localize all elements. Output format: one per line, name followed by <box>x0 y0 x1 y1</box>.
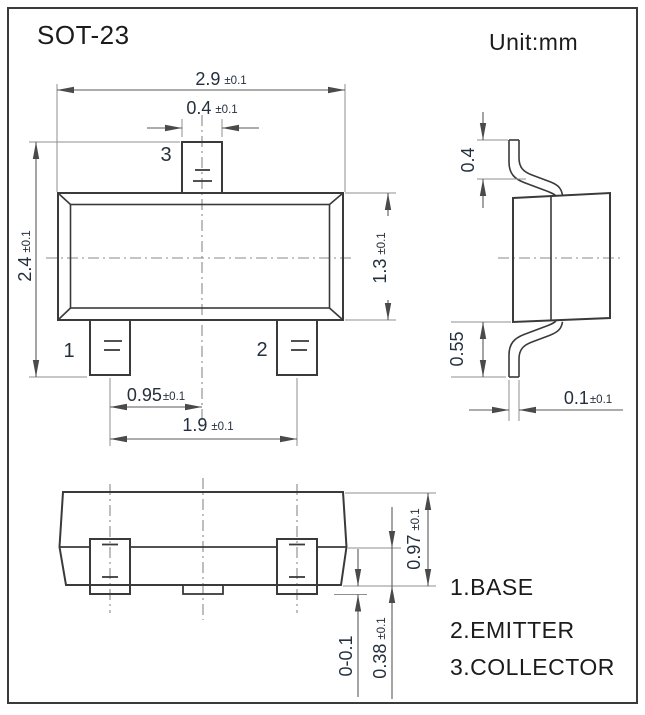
dim-upper-lead-length: 0.4 <box>458 112 526 208</box>
dim-text: 0.38±0.1 <box>370 617 390 678</box>
dim-tab-width: 0.4±0.1 <box>147 98 259 137</box>
package-outline-drawing: SOT-23 Unit:mm 3 1 2 <box>0 0 645 715</box>
dim-value: 1.3 <box>370 259 390 284</box>
dim-value: 2.9 <box>195 69 220 89</box>
seated-view: 0.97±0.1 0.38±0.1 0-0.1 <box>60 478 437 699</box>
dim-value: 0.95 <box>127 385 162 405</box>
side-lower-lead <box>519 322 563 377</box>
dim-standoff: 0-0.1 <box>334 549 367 697</box>
dim-tolerance: ±0.1 <box>163 391 185 403</box>
dim-overall-height: 2.4±0.1 <box>15 142 180 377</box>
front-lead-2 <box>277 320 317 375</box>
dim-tolerance: ±0.1 <box>410 508 422 530</box>
dim-value: 0.4 <box>186 98 211 118</box>
dim-text: 0.97±0.1 <box>404 508 424 569</box>
legend-item-emitter: 2.EMITTER <box>450 617 575 643</box>
legend-item-collector: 3.COLLECTOR <box>450 654 615 680</box>
dim-value: 0.38 <box>370 644 390 679</box>
front-body-bevel <box>330 308 344 320</box>
legend-item-base: 1.BASE <box>450 574 534 600</box>
drawing-frame <box>8 8 637 703</box>
dim-text: 0.1±0.1 <box>564 388 612 408</box>
unit-label: Unit:mm <box>489 29 578 55</box>
page-title: SOT-23 <box>37 20 130 50</box>
dim-value: 2.4 <box>15 257 35 282</box>
dim-text: 1.3±0.1 <box>370 232 390 283</box>
dim-text: 2.9±0.1 <box>195 69 246 89</box>
dim-text: 2.4±0.1 <box>15 230 35 281</box>
dim-text: 0.4±0.1 <box>186 98 237 118</box>
front-body-outline <box>58 193 343 320</box>
side-view: 0.4 0.55 0.1±0.1 <box>447 112 624 421</box>
dim-text: 1.9±0.1 <box>182 415 233 435</box>
pin1-label: 1 <box>63 340 74 362</box>
side-lower-lead <box>509 321 556 377</box>
dim-tolerance: ±0.1 <box>224 75 246 87</box>
dim-value: 0.1 <box>564 388 589 408</box>
pin3-label: 3 <box>160 144 171 166</box>
pin2-label: 2 <box>256 339 267 361</box>
dim-lead-thickness: 0.1±0.1 <box>469 380 623 421</box>
dim-value: 0-0.1 <box>336 635 356 676</box>
front-view: 3 1 2 2.9±0.1 0.4±0.1 <box>15 69 396 446</box>
dim-body-height: 1.3±0.1 <box>345 193 396 320</box>
dim-value: 0.55 <box>447 331 467 366</box>
dim-value: 0.97 <box>404 535 424 570</box>
dim-lower-lead-length: 0.55 <box>447 322 511 377</box>
dim-tolerance: ±0.1 <box>590 394 612 406</box>
pin-legend: 1.BASE 2.EMITTER 3.COLLECTOR <box>450 574 615 680</box>
dim-text: 0-0.1 <box>336 635 356 676</box>
front-body-bevel <box>58 308 71 320</box>
front-body-bevel <box>58 193 71 205</box>
front-body-bevel <box>330 193 344 205</box>
front-body-inner-outline <box>71 205 330 309</box>
dim-body-width: 2.9±0.1 <box>57 69 345 192</box>
dim-value: 1.9 <box>182 415 207 435</box>
dim-tolerance: ±0.1 <box>21 230 33 252</box>
dim-tolerance: ±0.1 <box>376 232 388 254</box>
drawing-canvas: SOT-23 Unit:mm 3 1 2 <box>0 0 645 715</box>
dim-text: 0.4 <box>458 147 478 172</box>
dim-text: 0.55 <box>447 331 467 366</box>
dim-tolerance: ±0.1 <box>376 617 388 639</box>
dim-tolerance: ±0.1 <box>211 421 233 433</box>
side-upper-lead <box>519 140 563 195</box>
dim-text: 0.95±0.1 <box>127 385 185 405</box>
front-lead-1 <box>90 320 130 375</box>
side-upper-lead <box>509 140 556 196</box>
dim-lead-pitch: 0.95±0.1 <box>110 378 202 446</box>
dim-value: 0.4 <box>458 147 478 172</box>
dim-tolerance: ±0.1 <box>215 104 237 116</box>
